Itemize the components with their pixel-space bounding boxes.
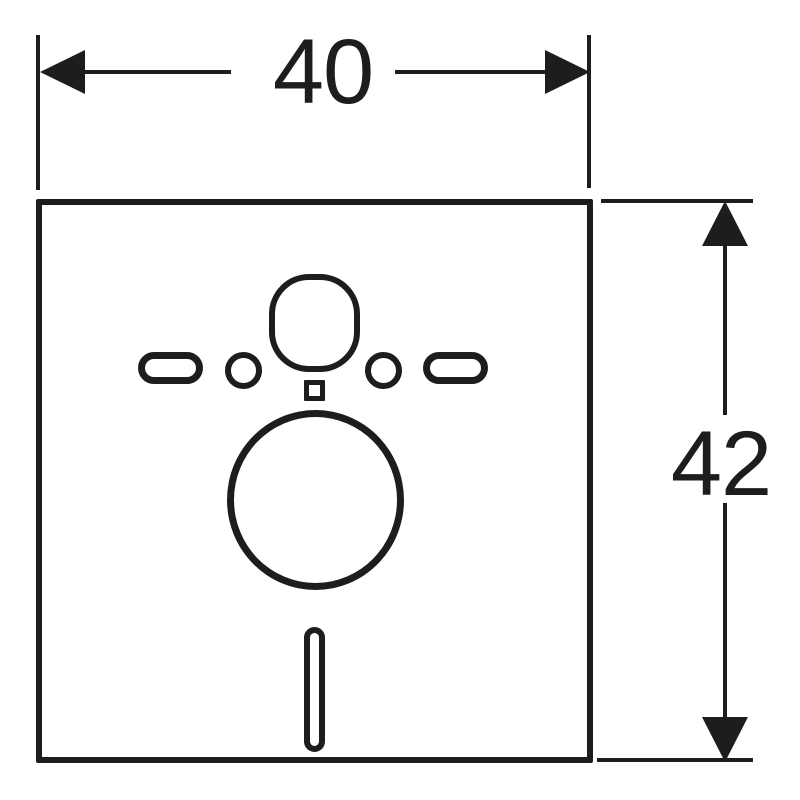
drain-pipe-cutout xyxy=(227,410,404,590)
height-dimension-line-bottom-segment xyxy=(723,503,727,717)
arrowhead-up-icon xyxy=(702,201,748,246)
arrowhead-left-icon xyxy=(40,50,85,94)
arrowhead-right-icon xyxy=(545,50,590,94)
height-dimension-line-top-segment xyxy=(723,244,727,415)
width-dimension-label: 40 xyxy=(253,26,393,118)
left-bolt-hole xyxy=(225,352,262,389)
bottom-slot-cutout xyxy=(304,627,325,752)
center-square-cutout xyxy=(304,380,325,401)
arrowhead-down-icon xyxy=(702,717,748,762)
height-dimension-label: 42 xyxy=(651,418,791,510)
technical-drawing-canvas: 40 42 xyxy=(0,0,800,800)
left-oblong-cutout xyxy=(138,352,203,384)
right-oblong-cutout xyxy=(423,352,488,384)
flush-pipe-cutout xyxy=(269,274,360,372)
right-bolt-hole xyxy=(365,352,402,389)
width-dimension-line-left-segment xyxy=(84,70,231,74)
width-dimension-line-right-segment xyxy=(395,70,546,74)
